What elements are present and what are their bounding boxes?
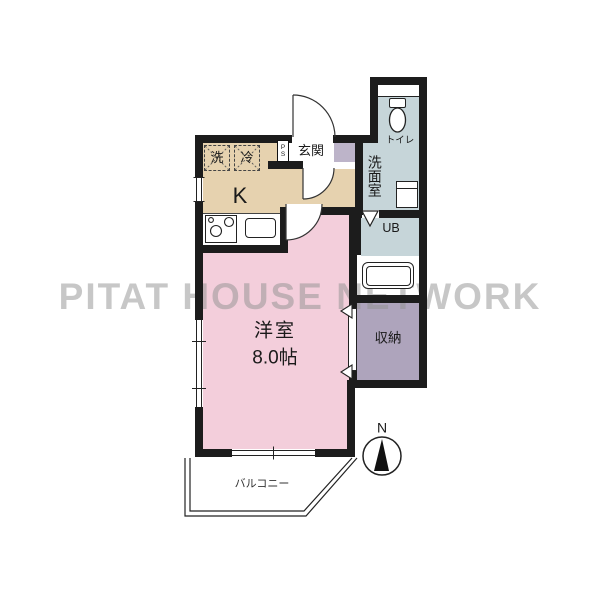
western-room-floor-upper: [288, 215, 351, 253]
wall-segment: [347, 388, 355, 457]
watermark-text: PITAT HOUSE NETWORK: [59, 276, 542, 318]
pipe-space-label: PS: [279, 144, 286, 158]
wall-segment: [195, 253, 203, 320]
balcony-label: バルコニー: [235, 478, 290, 490]
wall-segment: [195, 449, 232, 457]
wall-segment: [355, 143, 363, 215]
north-label: N: [377, 420, 387, 435]
front-door-arc: [293, 95, 335, 137]
unit-bath-label: UB: [382, 222, 399, 236]
wall-segment: [419, 77, 427, 388]
stove-fixture: [205, 215, 237, 243]
floor-plan: PITAT HOUSE NETWORK: [0, 0, 600, 600]
toilet-tank: [389, 98, 406, 108]
fridge-label: 冷: [240, 151, 253, 165]
storage-label: 収納: [375, 332, 402, 347]
wall-segment: [195, 143, 203, 177]
storage-door-panel: [348, 308, 357, 371]
toilet-label: トイレ: [386, 136, 415, 146]
wall-segment: [349, 295, 427, 303]
western-room-label: 洋室: [254, 322, 296, 343]
north-compass-icon: [363, 437, 401, 475]
wall-segment: [268, 161, 303, 169]
washroom-label: 洗面室: [366, 155, 381, 197]
wall-segment: [347, 380, 427, 388]
washroom-sink-fixture: [396, 181, 418, 208]
western-room-size: 8.0帖: [252, 349, 297, 370]
wall-segment: [195, 245, 288, 253]
bathtub-inner-line: [366, 266, 411, 286]
kitchen-label: K: [233, 184, 248, 208]
washer-label: 洗: [210, 151, 223, 165]
wall-segment: [379, 210, 427, 218]
kitchen-sink-fixture: [245, 218, 276, 238]
wall-segment: [280, 207, 288, 253]
toilet-cabinet: [378, 85, 419, 97]
wall-segment: [315, 449, 355, 457]
hallway-floor: [280, 169, 355, 207]
wall-segment: [195, 407, 203, 449]
entrance-label: 玄関: [298, 144, 324, 158]
wall-segment: [349, 215, 361, 255]
shoe-cabinet: [334, 140, 355, 162]
wall-segment: [370, 85, 378, 140]
